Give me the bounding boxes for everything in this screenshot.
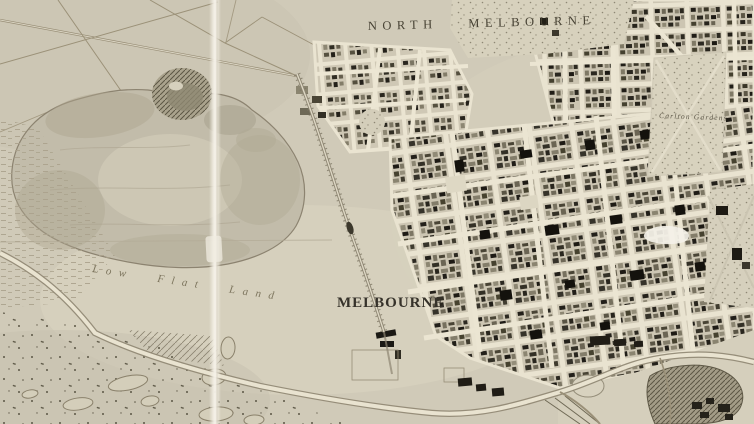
park-east-reserve — [704, 184, 754, 308]
map-artwork: Carlton Gardens — [0, 0, 754, 424]
park-carlton-gardens: Carlton Gardens — [648, 52, 728, 176]
map-scan: Carlton Gardens — [0, 0, 754, 424]
market-square — [445, 175, 467, 194]
label-melbourne: MELBOURNE — [337, 295, 444, 311]
